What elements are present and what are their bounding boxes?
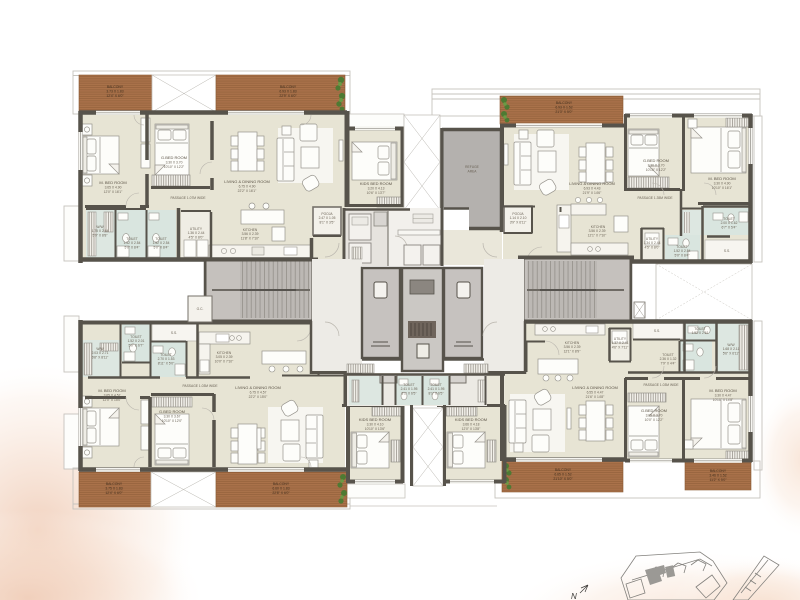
svg-text:KITCHEN3.56 X 2.3912'1" X 8'9": KITCHEN3.56 X 2.3912'1" X 8'9" xyxy=(564,341,582,353)
svg-text:BALCONY3.73 X 1.8312'4" X 6'0": BALCONY3.73 X 1.8312'4" X 6'0" xyxy=(106,85,124,98)
svg-text:BALCONY6.65 X 1.5221'10" X 5'0: BALCONY6.65 X 1.5221'10" X 5'0" xyxy=(553,468,573,481)
svg-text:S.S.: S.S. xyxy=(654,329,660,333)
svg-text:KITCHEN3.56 X 2.3911'8" X 7'10: KITCHEN3.56 X 2.3911'8" X 7'10" xyxy=(241,228,260,240)
svg-text:KITCHEN3.05 X 2.3910'0" X 7'10: KITCHEN3.05 X 2.3910'0" X 7'10" xyxy=(215,351,234,363)
svg-text:S.S.: S.S. xyxy=(171,331,177,335)
svg-text:UTILITY1.36 X 2.444'5" X 8'0": UTILITY1.36 X 2.444'5" X 8'0" xyxy=(188,227,205,239)
svg-text:N: N xyxy=(571,592,577,600)
svg-text:PASSAGE 1.03M WIDE: PASSAGE 1.03M WIDE xyxy=(643,383,679,387)
svg-text:PASSAGE 1.07M WIDE: PASSAGE 1.07M WIDE xyxy=(170,196,206,200)
svg-text:BALCONY6.93 X 1.8322'9" X 6'0": BALCONY6.93 X 1.8322'9" X 6'0" xyxy=(279,85,297,98)
svg-text:BALCONY3.46 X 1.5211'2" X 5'0": BALCONY3.46 X 1.5211'2" X 5'0" xyxy=(709,469,727,482)
svg-text:G.C.: G.C. xyxy=(197,307,204,311)
svg-text:BALCONY6.60 X 1.8322'8" X 6'0": BALCONY6.60 X 1.8322'8" X 6'0" xyxy=(272,482,290,495)
svg-text:BALCONY6.93 X 1.5221'3" X 5'0": BALCONY6.93 X 1.5221'3" X 5'0" xyxy=(555,101,573,114)
svg-text:PASSAGE 1.35M WIDE: PASSAGE 1.35M WIDE xyxy=(637,196,673,200)
svg-text:PASSAGE 1.03M WIDE: PASSAGE 1.03M WIDE xyxy=(182,384,218,388)
svg-text:BALCONY3.75 X 1.8312'4" X 6'0": BALCONY3.75 X 1.8312'4" X 6'0" xyxy=(105,482,123,495)
svg-text:KITCHEN3.56 X 2.3912'1" X 7'10: KITCHEN3.56 X 2.3912'1" X 7'10" xyxy=(588,225,607,237)
svg-text:S.S.: S.S. xyxy=(724,249,730,253)
svg-text:UTILITY1.34 X 2.444'5" X 8'0": UTILITY1.34 X 2.444'5" X 8'0" xyxy=(644,237,661,249)
